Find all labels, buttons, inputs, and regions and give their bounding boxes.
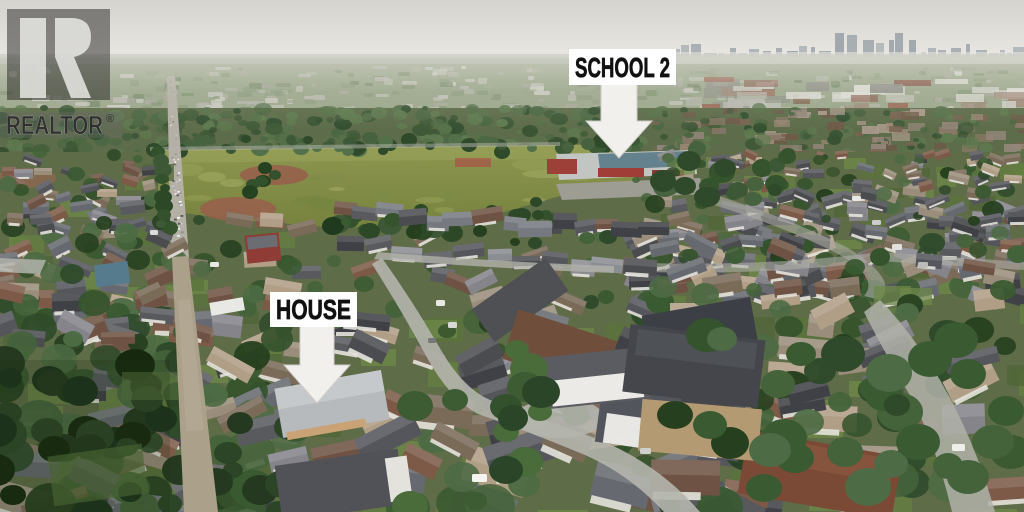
svg-text:SCHOOL 2: SCHOOL 2	[575, 52, 670, 83]
svg-text:REALTOR: REALTOR	[6, 110, 103, 140]
svg-text:HOUSE: HOUSE	[276, 294, 351, 325]
svg-text:®: ®	[106, 113, 114, 125]
